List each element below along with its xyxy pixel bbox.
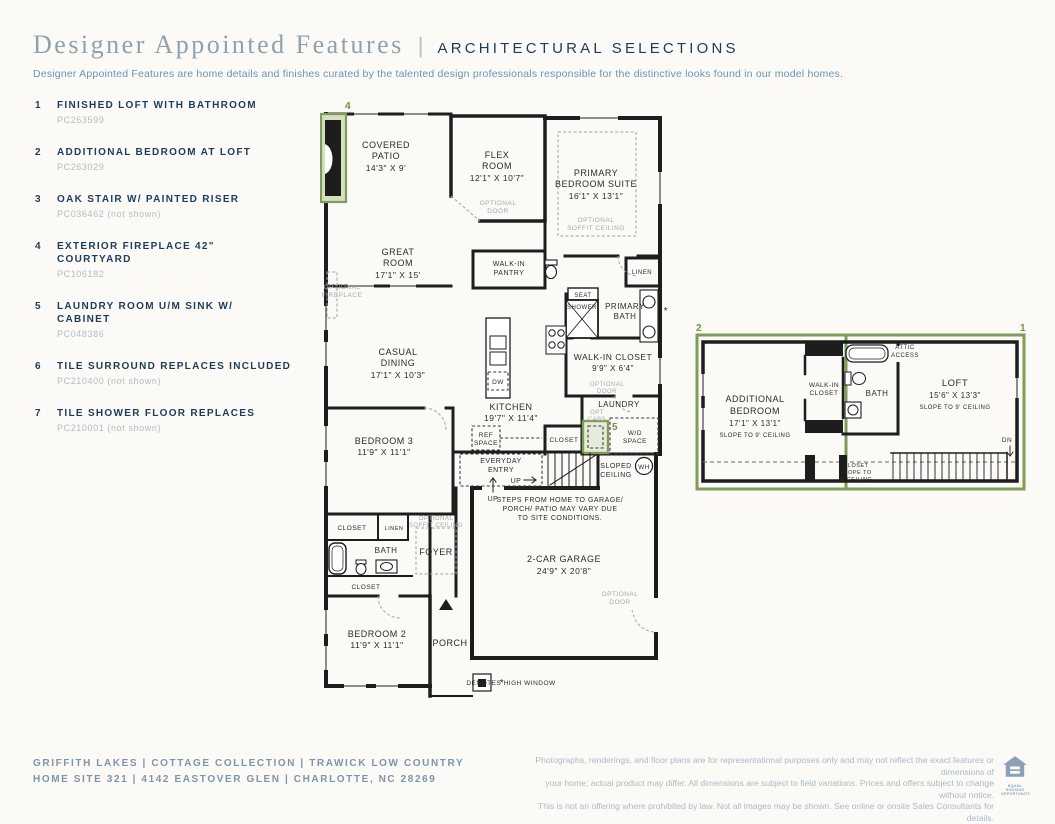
feature-number: 7 [35, 407, 57, 433]
feature-code: PC210001 (not shown) [57, 423, 255, 433]
feature-code: PC210400 (not shown) [57, 376, 291, 386]
feature-code: PC106182 [57, 269, 239, 279]
feature-code: PC263029 [57, 162, 251, 172]
title-row: Designer Appointed Features | ARCHITECTU… [33, 30, 1023, 60]
equal-housing-caption: OPPORTUNITY [1001, 792, 1029, 796]
label-optional-door: OPTIONAL [590, 382, 625, 388]
label-kitchen: KITCHEN [489, 402, 532, 412]
label-attic-access: ATTIC [895, 345, 915, 351]
bath2-toilet [356, 560, 366, 575]
label-casual-dining: DINING [381, 358, 416, 368]
label-covered-patio-dims: 14'3" X 9' [366, 163, 407, 173]
header-description: Designer Appointed Features are home det… [33, 68, 1023, 80]
loft-tub [846, 345, 888, 362]
feature-code: PC036462 (not shown) [57, 209, 239, 219]
label-laundry: LAUNDRY [598, 400, 640, 409]
feature-number: 3 [35, 193, 57, 219]
label-porch: PORCH [432, 638, 467, 648]
label-everyday-entry: ENTRY [488, 467, 514, 474]
label-sloped-ceiling: CEILING [600, 472, 632, 479]
loft-sink [845, 402, 861, 418]
main-floor-plan: 4 COVE [320, 96, 672, 708]
page-title: Designer Appointed Features [33, 30, 404, 60]
label-optional-soffit: OPTIONAL [419, 516, 454, 522]
label-steps-note: STEPS FROM HOME TO GARAGE/ [497, 497, 624, 504]
feature-code: PC048386 [57, 329, 239, 339]
label-great-room: ROOM [383, 258, 413, 268]
label-additional-bedroom-dims: 17'1" X 13'1" [729, 419, 781, 428]
label-linen: LINEN [385, 526, 404, 532]
feature-list: 1 FINISHED LOFT WITH BATHROOM PC263599 2… [35, 99, 305, 454]
callout-1: 1 [1020, 323, 1026, 334]
label-garage: 2-CAR GARAGE [527, 554, 601, 564]
label-optional-fireplace: FIREPLACE [322, 292, 363, 299]
label-attic-access: ACCESS [891, 353, 919, 359]
label-optional-door: DOOR [487, 208, 509, 215]
vanity-double-sink [640, 290, 658, 342]
label-steps-note: TO SITE CONDITIONS. [518, 515, 602, 522]
label-sloped-ceiling: SLOPED [600, 463, 631, 470]
label-optional-door: DOOR [597, 389, 617, 395]
feature-title: EXTERIOR FIREPLACE 42" COURTYARD [57, 240, 239, 266]
label-great-room-dims: 17'1" X 15' [375, 270, 421, 280]
feature-number: 6 [35, 360, 57, 386]
label-bedroom3-dims: 11'9" X 11'1" [357, 447, 410, 457]
label-kitchen-dims: 19'7" X 11'4" [484, 413, 538, 423]
label-flex-room: ROOM [482, 161, 512, 171]
label-loft: LOFT [942, 378, 968, 389]
label-walk-in-pantry: PANTRY [494, 270, 525, 277]
feature-item-3: 3 OAK STAIR W/ PAINTED RISER PC036462 (n… [35, 193, 305, 219]
laundry-sink-highlight [583, 421, 608, 453]
label-loft-closet: SLOPE TO [840, 470, 872, 476]
label-optional-door: OPTIONAL [602, 591, 639, 598]
label-optional-door: DOOR [609, 599, 631, 606]
header: Designer Appointed Features | ARCHITECTU… [33, 30, 1023, 80]
label-foyer: FOYER [419, 547, 453, 557]
feature-item-6: 6 TILE SURROUND REPLACES INCLUDED PC2104… [35, 360, 305, 386]
kitchen-island [486, 318, 510, 398]
title-divider: | [418, 33, 424, 59]
pantry-toilet-icon [545, 260, 557, 279]
feature-title: OAK STAIR W/ PAINTED RISER [57, 193, 239, 206]
feature-title: ADDITIONAL BEDROOM AT LOFT [57, 146, 251, 159]
footer-community-line: GRIFFITH LAKES | COTTAGE COLLECTION | TR… [33, 756, 464, 772]
label-walk-in-closet: WALK-IN CLOSET [574, 352, 652, 362]
label-everyday-entry: EVERYDAY [480, 458, 521, 465]
label-ref-space: SPACE [474, 440, 498, 447]
label-optional-soffit: SOFFIT CEILING [409, 523, 463, 529]
disclaimer-line: Photographs, renderings, and floor plans… [528, 755, 994, 778]
label-shower: SHOWER [567, 305, 597, 311]
label-wd-space: SPACE [623, 438, 647, 445]
callout-4: 4 [345, 100, 351, 112]
label-dn: DN [1002, 437, 1012, 444]
feature-number: 1 [35, 99, 57, 125]
label-flex-room: FLEX [485, 150, 510, 160]
loft-stairs-down [891, 446, 1013, 480]
label-closet: CLOSET [549, 437, 578, 444]
feature-item-5: 5 LAUNDRY ROOM U/M SINK W/ CABINET PC048… [35, 300, 305, 339]
label-ref-space: REF [479, 432, 494, 439]
label-bedroom3: BEDROOM 3 [355, 436, 414, 446]
label-primary-bath: PRIMARY [605, 302, 645, 311]
equal-housing-logo: EQUAL HOUSING OPPORTUNITY [1001, 755, 1029, 797]
equal-housing-house-icon [1002, 755, 1028, 779]
feature-number: 5 [35, 300, 57, 339]
label-seat: SEAT [574, 293, 591, 299]
feature-item-2: 2 ADDITIONAL BEDROOM AT LOFT PC263029 [35, 146, 305, 172]
label-casual-dining: CASUAL [378, 347, 417, 357]
label-additional-bedroom-note: SLOPE TO 9' CEILING [719, 433, 790, 439]
label-primary-bath: BATH [614, 312, 637, 321]
footer-disclaimer: Photographs, renderings, and floor plans… [528, 755, 994, 824]
label-loft-walk-in-closet: WALK-IN [809, 382, 839, 389]
label-optional-door: OPTIONAL [480, 200, 517, 207]
label-closet: CLOSET [337, 525, 366, 532]
label-loft-closet: CLOSET [843, 463, 868, 469]
label-loft-bath: BATH [866, 389, 889, 398]
label-wd-space: W/D [628, 430, 642, 437]
label-loft-closet: 9' CEILING [840, 477, 873, 483]
label-bedroom2: BEDROOM 2 [348, 629, 407, 639]
label-opt-cabs: CABS [588, 417, 606, 423]
label-bath: BATH [375, 546, 398, 555]
feature-title: TILE SHOWER FLOOR REPLACES [57, 407, 255, 420]
label-flex-room-dims: 12'1" X 10'7" [470, 173, 525, 183]
label-primary-suite: PRIMARY [574, 168, 618, 178]
label-great-room: GREAT [382, 247, 415, 257]
label-loft-note: SLOPE TO 9' CEILING [919, 405, 990, 411]
cooktop-icon [546, 326, 566, 354]
label-bedroom2-dims: 11'9" X 11'1" [350, 640, 403, 650]
label-garage-dims: 24'9" X 20'8" [537, 566, 592, 576]
label-opt-cabs: OPT [590, 410, 604, 416]
label-optional-soffit: OPTIONAL [578, 217, 615, 224]
exterior-fireplace-highlight: 4 [321, 100, 351, 202]
feature-item-7: 7 TILE SHOWER FLOOR REPLACES PC210001 (n… [35, 407, 305, 433]
feature-item-1: 1 FINISHED LOFT WITH BATHROOM PC263599 [35, 99, 305, 125]
bath2-tub [329, 543, 346, 574]
feature-title: FINISHED LOFT WITH BATHROOM [57, 99, 257, 112]
high-window-asterisk: * [664, 306, 668, 317]
disclaimer-line: your home; actual product may differ. Al… [528, 778, 994, 801]
loft-labels: ADDITIONAL BEDROOM 17'1" X 13'1" SLOPE T… [719, 345, 1012, 483]
label-primary-suite: BEDROOM SUITE [555, 179, 637, 189]
label-walk-in-pantry: WALK-IN [493, 261, 525, 268]
footer-community-info: GRIFFITH LAKES | COTTAGE COLLECTION | TR… [33, 756, 464, 788]
label-optional-soffit: SOFFIT CEILING [567, 225, 625, 232]
feature-number: 2 [35, 146, 57, 172]
section-title: ARCHITECTURAL SELECTIONS [437, 40, 738, 57]
callout-5: 5 [612, 422, 618, 433]
loft-toilet [845, 372, 866, 385]
disclaimer-line: This is not an offering where prohibited… [528, 801, 994, 824]
label-wh: WH [638, 464, 650, 471]
feature-number: 4 [35, 240, 57, 279]
bath2-sink [376, 560, 397, 573]
footer-address-line: HOME SITE 321 | 4142 EASTOVER GLEN | CHA… [33, 772, 464, 788]
label-dw: DW [492, 379, 504, 386]
porch-door-marker [439, 599, 453, 610]
label-steps-note: PORCH/ PATIO MAY VARY DUE [502, 506, 617, 513]
label-up: UP [511, 478, 522, 485]
label-loft-walk-in-closet: CLOSET [809, 390, 838, 397]
label-linen: LINEN [632, 270, 652, 276]
feature-title: LAUNDRY ROOM U/M SINK W/ CABINET [57, 300, 239, 326]
label-closet: CLOSET [351, 584, 380, 591]
label-additional-bedroom: ADDITIONAL [725, 394, 784, 404]
label-covered-patio: COVERED [362, 140, 410, 150]
loft-floor-plan: 2 1 ADDITIONAL BEDROOM 17'1" X 13'1" SLO… [693, 322, 1029, 494]
label-covered-patio: PATIO [372, 151, 400, 161]
feature-code: PC263599 [57, 115, 257, 125]
equal-housing-caption: EQUAL HOUSING [1001, 784, 1029, 792]
loft-fixtures [845, 345, 888, 418]
label-optional-fireplace: OPTIONAL [324, 284, 361, 291]
label-casual-dining-dims: 17'1" X 10'3" [371, 370, 426, 380]
callout-2: 2 [696, 323, 702, 334]
label-walk-in-closet-dims: 9'9" X 6'4" [592, 364, 634, 373]
label-primary-suite-dims: 16'1" X 13'1" [569, 191, 624, 201]
label-additional-bedroom: BEDROOM [730, 406, 780, 416]
label-loft-dims: 15'6" X 13'3" [929, 391, 981, 400]
label-high-window-note: DENOTES HIGH WINDOW [466, 680, 556, 687]
feature-item-4: 4 EXTERIOR FIREPLACE 42" COURTYARD PC106… [35, 240, 305, 279]
feature-title: TILE SURROUND REPLACES INCLUDED [57, 360, 291, 373]
